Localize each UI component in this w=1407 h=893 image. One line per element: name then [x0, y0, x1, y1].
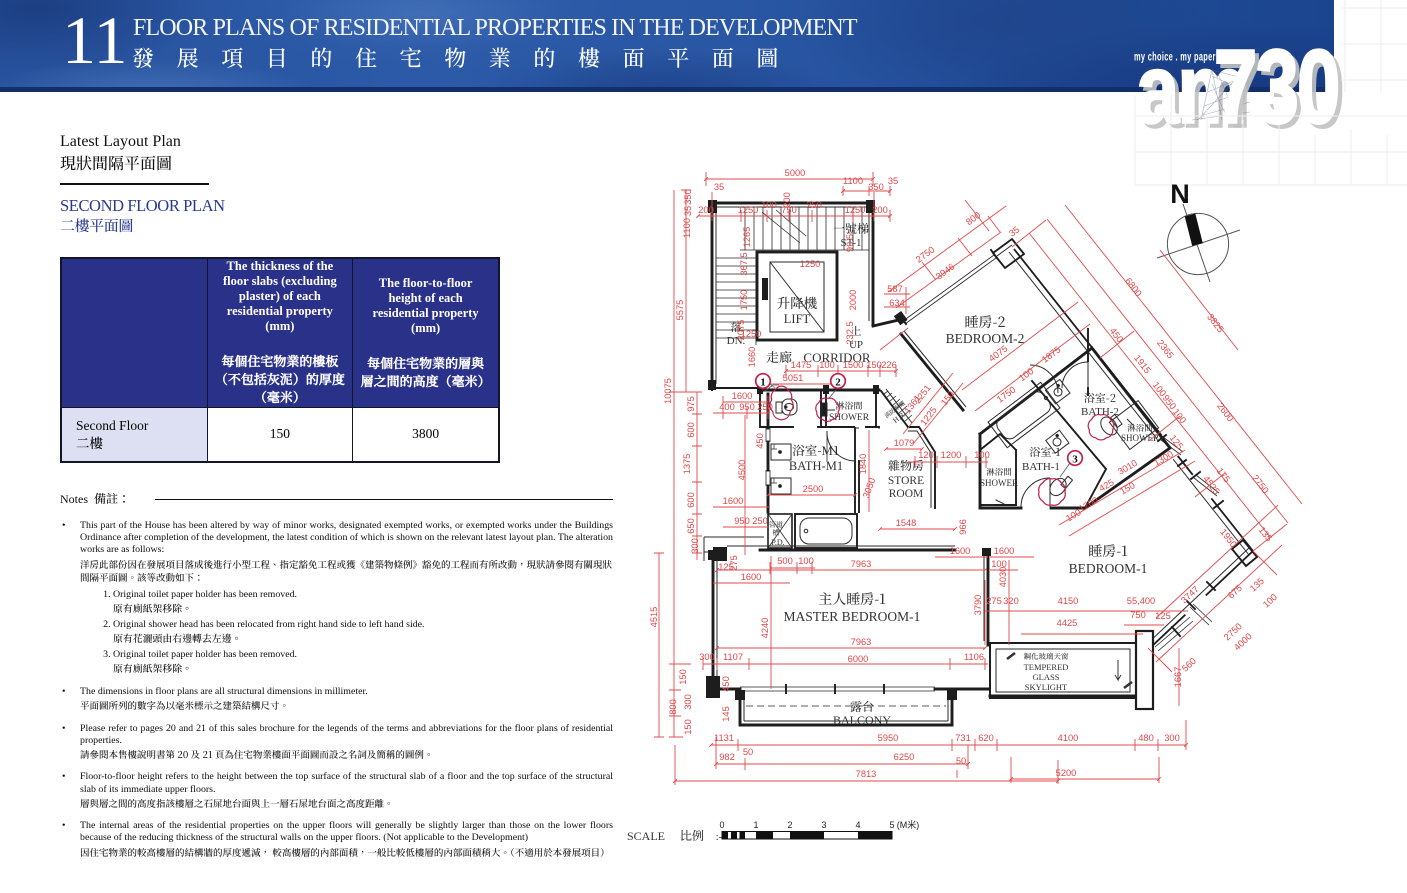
- svg-text:150: 150: [678, 669, 688, 685]
- svg-text:GLASS: GLASS: [1033, 672, 1060, 682]
- svg-text:TEMPERED: TEMPERED: [1024, 662, 1069, 672]
- svg-text:600: 600: [686, 422, 696, 438]
- svg-text:主人睡房-1: 主人睡房-1: [818, 589, 886, 609]
- svg-text:BATH-M1: BATH-M1: [789, 459, 843, 473]
- svg-text:5051: 5051: [783, 373, 804, 383]
- svg-text:淋浴間: 淋浴間: [986, 466, 1012, 478]
- svg-text:2000: 2000: [848, 290, 858, 311]
- svg-text:鋼化玻璃天窗: 鋼化玻璃天窗: [1024, 651, 1069, 662]
- svg-text:1600: 1600: [741, 572, 762, 582]
- svg-text:300: 300: [683, 694, 693, 710]
- svg-text:4500: 4500: [737, 460, 747, 481]
- svg-text:BALCONY: BALCONY: [833, 713, 891, 727]
- svg-text:320: 320: [1003, 596, 1019, 606]
- svg-text:槽: 槽: [773, 528, 780, 538]
- svg-text:7963: 7963: [851, 559, 872, 569]
- svg-text:MASTER BEDROOM-1: MASTER BEDROOM-1: [784, 609, 921, 624]
- svg-text:3946: 3946: [934, 261, 957, 281]
- svg-text:675: 675: [1226, 583, 1244, 601]
- svg-text:1250: 1250: [738, 205, 759, 215]
- svg-text:3790: 3790: [973, 595, 983, 616]
- svg-text:800: 800: [964, 210, 982, 227]
- svg-text:2500: 2500: [803, 484, 824, 494]
- svg-text:300: 300: [1164, 733, 1180, 743]
- svg-text:2600: 2600: [1215, 401, 1236, 423]
- svg-text:SHOWER: SHOWER: [980, 478, 1018, 488]
- svg-text:4240: 4240: [760, 618, 770, 639]
- svg-text:450: 450: [721, 676, 731, 692]
- svg-text:950: 950: [739, 402, 755, 412]
- svg-text:5: 5: [889, 820, 894, 830]
- svg-text:100: 100: [798, 556, 814, 566]
- svg-text:1840: 1840: [858, 454, 868, 475]
- svg-text:1265: 1265: [742, 227, 752, 248]
- svg-text:150: 150: [683, 719, 693, 735]
- svg-text:4515: 4515: [649, 607, 659, 628]
- svg-text:1600: 1600: [723, 496, 744, 506]
- svg-text:3825: 3825: [1205, 312, 1226, 334]
- svg-text:135: 135: [1257, 525, 1274, 543]
- svg-text:1667: 1667: [1173, 667, 1183, 688]
- svg-text:950: 950: [734, 516, 750, 526]
- svg-text:比例: 比例: [680, 827, 704, 844]
- svg-text:SKYLIGHT: SKYLIGHT: [1025, 682, 1068, 692]
- svg-text:1600: 1600: [994, 546, 1015, 556]
- svg-text:1548: 1548: [896, 518, 917, 528]
- svg-text:LIFT: LIFT: [784, 312, 811, 326]
- svg-text:50: 50: [743, 747, 753, 757]
- svg-text:275: 275: [986, 596, 1002, 606]
- svg-text:400: 400: [719, 402, 735, 412]
- svg-text:300: 300: [699, 652, 715, 662]
- svg-text:6250: 6250: [894, 752, 915, 762]
- svg-text:1750: 1750: [739, 290, 749, 311]
- svg-text:1079: 1079: [894, 438, 915, 448]
- svg-text:982: 982: [719, 752, 735, 762]
- svg-text:浴室-2: 浴室-2: [1084, 390, 1116, 406]
- svg-text:BATH-1: BATH-1: [1022, 461, 1060, 473]
- svg-text:5200: 5200: [1056, 768, 1077, 778]
- svg-text:ROOM: ROOM: [889, 488, 924, 500]
- svg-text:6000: 6000: [848, 654, 869, 664]
- svg-text:620: 620: [978, 733, 994, 743]
- svg-text:睡房-2: 睡房-2: [965, 312, 1006, 332]
- svg-text:2750: 2750: [1250, 473, 1271, 495]
- svg-text:走廊: 走廊: [766, 347, 792, 366]
- svg-text:480: 480: [1138, 733, 1154, 743]
- svg-text:浴室-1: 浴室-1: [1029, 444, 1060, 460]
- svg-text:SCALE: SCALE: [627, 829, 665, 843]
- svg-text:1500: 1500: [843, 360, 864, 370]
- svg-text:1600: 1600: [732, 391, 753, 401]
- svg-text:1131: 1131: [714, 733, 734, 743]
- svg-text:200: 200: [698, 205, 714, 215]
- svg-text:100: 100: [1171, 407, 1188, 425]
- svg-text:367.5: 367.5: [739, 252, 749, 275]
- svg-text:100: 100: [991, 559, 1007, 569]
- svg-text:1100: 1100: [843, 176, 863, 186]
- svg-text:1200: 1200: [941, 450, 962, 460]
- svg-text:3: 3: [821, 820, 826, 830]
- svg-text:650: 650: [686, 518, 696, 534]
- svg-text:587: 587: [887, 284, 903, 294]
- svg-text:升降機: 升降機: [777, 292, 818, 312]
- svg-text:100: 100: [974, 450, 990, 460]
- svg-text:100: 100: [1261, 592, 1279, 610]
- svg-text:1250: 1250: [800, 259, 821, 269]
- svg-text:2: 2: [835, 377, 841, 389]
- svg-text:55,400: 55,400: [1127, 596, 1155, 606]
- svg-text:145: 145: [721, 706, 731, 722]
- svg-text:4075: 4075: [987, 343, 1010, 363]
- svg-text:1250: 1250: [845, 205, 866, 215]
- svg-text:1660: 1660: [747, 347, 757, 368]
- svg-text:35: 35: [888, 176, 898, 186]
- svg-text:BATH-2: BATH-2: [1081, 406, 1119, 418]
- svg-text:7963: 7963: [851, 637, 872, 647]
- svg-text:350: 350: [868, 182, 884, 192]
- svg-text:250: 250: [806, 200, 822, 210]
- svg-text:35: 35: [714, 182, 724, 192]
- svg-text:750: 750: [781, 205, 797, 215]
- svg-text:SHOWER: SHOWER: [1121, 433, 1159, 443]
- svg-text:100: 100: [761, 200, 777, 210]
- svg-text:135: 135: [1248, 576, 1266, 594]
- svg-text:2: 2: [787, 820, 792, 830]
- svg-text:731: 731: [955, 733, 971, 743]
- svg-text:50: 50: [956, 756, 966, 766]
- svg-text:800: 800: [668, 699, 678, 715]
- svg-text:1250: 1250: [741, 329, 762, 339]
- svg-text:275: 275: [729, 555, 739, 571]
- svg-text:600: 600: [686, 492, 696, 508]
- svg-text:150: 150: [866, 360, 882, 370]
- svg-text:750: 750: [1130, 610, 1146, 620]
- svg-text:200: 200: [872, 205, 888, 215]
- svg-text:1: 1: [760, 377, 766, 389]
- svg-text:5950: 5950: [878, 733, 899, 743]
- svg-text:BEDROOM-1: BEDROOM-1: [1069, 561, 1148, 576]
- svg-text:4100: 4100: [1058, 733, 1079, 743]
- svg-text:1: 1: [753, 820, 758, 830]
- svg-text:5575: 5575: [675, 300, 685, 321]
- svg-text:250: 250: [752, 516, 768, 526]
- svg-text:1915: 1915: [1132, 353, 1153, 375]
- svg-text:975: 975: [686, 396, 696, 412]
- svg-text:100: 100: [819, 360, 835, 370]
- svg-text:226: 226: [881, 360, 897, 370]
- svg-text:(M米): (M米): [897, 819, 920, 830]
- svg-text:2750: 2750: [914, 244, 937, 264]
- svg-text:35: 35: [1007, 224, 1021, 238]
- svg-text:1107: 1107: [723, 652, 743, 662]
- svg-text:1375: 1375: [682, 454, 692, 475]
- svg-text:99.5: 99.5: [845, 234, 855, 252]
- svg-text:BEDROOM-2: BEDROOM-2: [946, 331, 1025, 346]
- svg-text:300: 300: [690, 538, 700, 554]
- svg-text:4: 4: [855, 820, 860, 830]
- svg-text:3: 3: [1072, 454, 1078, 466]
- svg-text:966: 966: [958, 519, 968, 535]
- svg-text:232.5: 232.5: [845, 321, 855, 344]
- svg-text:500: 500: [777, 556, 793, 566]
- svg-text:7813: 7813: [856, 769, 877, 779]
- svg-text:450: 450: [1108, 326, 1125, 344]
- svg-text:1106: 1106: [964, 652, 984, 662]
- svg-text:35: 35: [683, 206, 693, 216]
- svg-text:1200: 1200: [1077, 495, 1100, 514]
- svg-text:350: 350: [683, 189, 693, 205]
- svg-text:120: 120: [918, 450, 934, 460]
- svg-text:6800: 6800: [1123, 276, 1144, 298]
- svg-text:4150: 4150: [1058, 596, 1079, 606]
- svg-text:125: 125: [1155, 611, 1171, 621]
- svg-text:睡房-1: 睡房-1: [1088, 541, 1128, 561]
- svg-text:5000: 5000: [785, 168, 806, 178]
- svg-text:STORE: STORE: [888, 475, 924, 487]
- svg-text:N: N: [1170, 179, 1190, 209]
- svg-text:1475: 1475: [791, 360, 812, 370]
- svg-text:10075: 10075: [663, 378, 673, 404]
- svg-text:1100: 1100: [682, 218, 692, 238]
- svg-text:450: 450: [755, 433, 765, 449]
- svg-text:4425: 4425: [1057, 618, 1078, 628]
- svg-text:0: 0: [719, 820, 724, 830]
- svg-text:1600: 1600: [950, 546, 971, 556]
